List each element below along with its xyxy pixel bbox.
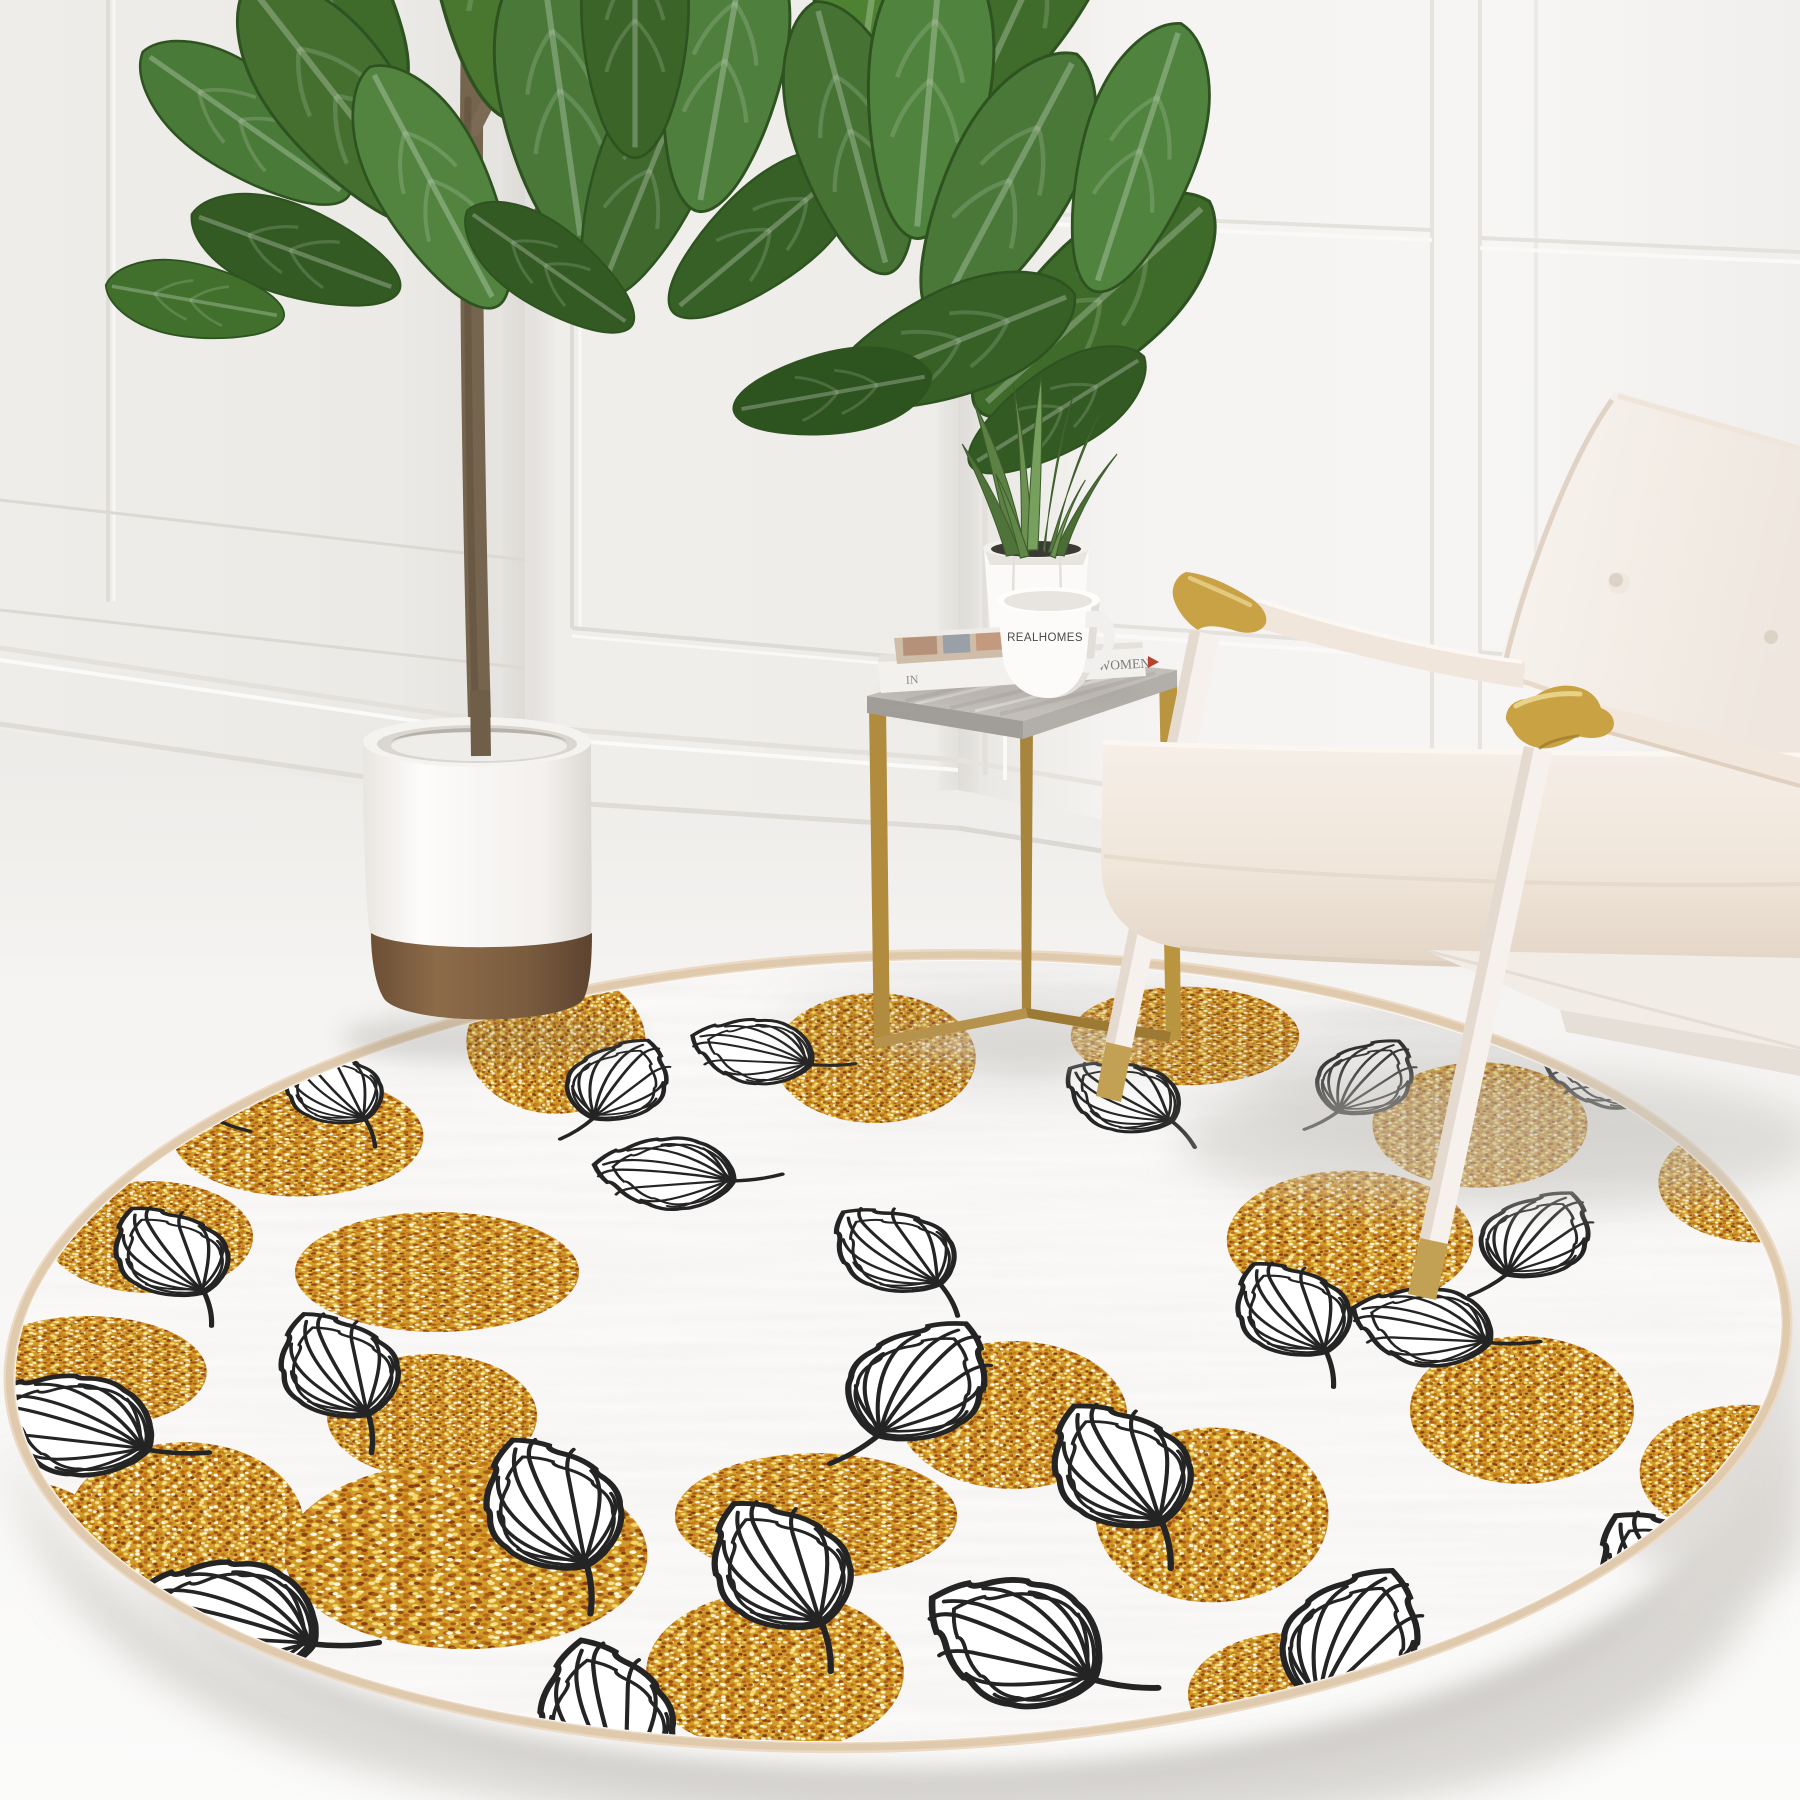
svg-text:IN: IN (905, 672, 919, 687)
svg-text:REALHOMES: REALHOMES (1007, 632, 1083, 644)
